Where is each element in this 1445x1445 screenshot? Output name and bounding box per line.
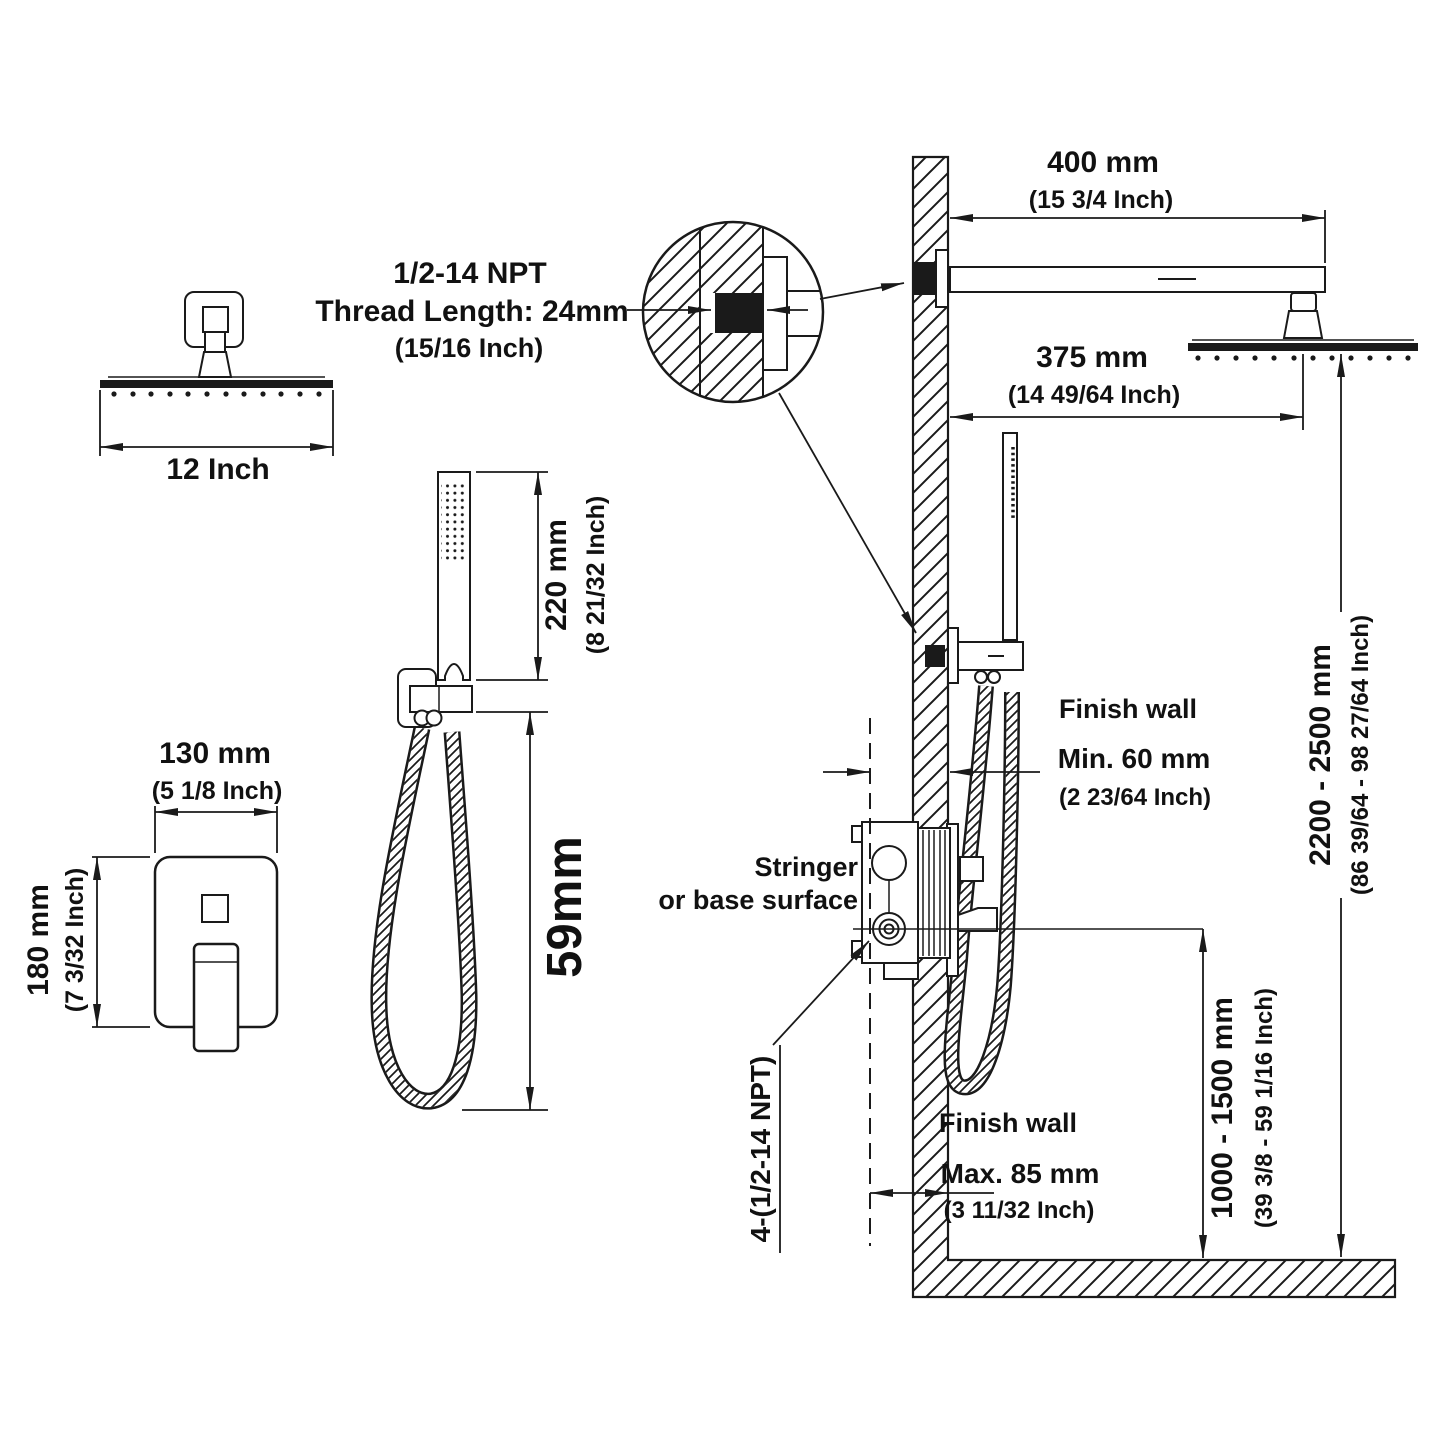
wall-hose-nut [988, 671, 1000, 683]
dim-head-height-in: (86 39/64 - 98 27/64 Inch) [1347, 615, 1374, 895]
dim-arm-mm: 400 mm [1047, 146, 1159, 179]
dim-max-in: (3 11/32 Inch) [944, 1197, 1095, 1224]
hand-shower-view: 220 mm (8 21/32 Inch) 59mm [379, 472, 610, 1110]
head-neck-cone [199, 352, 231, 377]
dim-min-mm: Min. 60 mm [1058, 743, 1210, 774]
npt-leader-arrow [773, 941, 869, 1045]
dim-valve-height-mm: 180 mm [22, 884, 55, 996]
holder-clamp [410, 686, 472, 712]
detail-flange [763, 257, 787, 370]
dim-hose-label-group: 59mm [538, 836, 592, 978]
dim-wand-length-in: (8 21/32 Inch) [582, 496, 610, 654]
valve-tab [852, 826, 862, 842]
dim-valve-install-in: (39 3/8 - 59 1/16 Inch) [1251, 988, 1278, 1228]
npt-ports-label-group: 4-(1/2-14 NPT) [745, 1045, 780, 1253]
dim-wand-length-labels: 220 mm (8 21/32 Inch) [540, 496, 610, 654]
shower-arm [950, 267, 1325, 292]
arm-thread-nipple [913, 262, 937, 295]
dim-head-height-labels: 2200 - 2500 mm (86 39/64 - 98 27/64 Inch… [1304, 615, 1374, 895]
wall-hose [951, 686, 1012, 1087]
dim-head-width-label: 12 Inch [166, 453, 269, 486]
head-swivel-cone [1284, 311, 1322, 338]
dim-valve-height-in: (7 3/32 Inch) [61, 868, 89, 1013]
wall-hose-nut [975, 671, 987, 683]
dim-offset-mm: 375 mm [1036, 341, 1148, 374]
dim-wand-length-mm: 220 mm [540, 519, 573, 631]
dim-arm-in: (15 3/4 Inch) [1029, 186, 1174, 214]
overhead-shower-front-view: 12 Inch [100, 292, 333, 486]
head-ball-collar [205, 332, 225, 352]
detail-leader-holder [779, 393, 916, 633]
thread-label-line2: Thread Length: 24mm [315, 295, 628, 328]
npt-ports-label: 4-(1/2-14 NPT) [745, 1056, 776, 1243]
diagram-canvas: 12 Inch 130 mm (5 1/8 Inch) 180 mm (7 3/… [0, 0, 1445, 1445]
dim-offset-in: (14 49/64 Inch) [1008, 381, 1180, 409]
arm-flange [936, 250, 948, 307]
hand-shower-hose [379, 728, 469, 1101]
detail-leader-arm [820, 283, 904, 299]
valve-bottom-port [884, 963, 918, 979]
thread-detail-view: 1/2-14 NPT Thread Length: 24mm (15/16 In… [315, 215, 916, 633]
wall-wand [1003, 433, 1017, 640]
dim-hose-label: 59mm [538, 836, 592, 978]
dim-max-mm: Max. 85 mm [941, 1158, 1100, 1189]
wall-holder-flange [948, 628, 958, 683]
stringer-label-line1: Stringer [754, 852, 858, 882]
holder-thread-nipple [925, 645, 945, 667]
dim-valve-install-mm: 1000 - 1500 mm [1206, 997, 1239, 1219]
valve-handle [194, 944, 238, 1051]
dim-min-in: (2 23/64 Inch) [1059, 784, 1211, 811]
stringer-label-line2: or base surface [658, 885, 858, 915]
thread-label-line1: 1/2-14 NPT [393, 257, 546, 290]
dim-head-height-mm: 2200 - 2500 mm [1304, 644, 1337, 866]
thread-label-line3: (15/16 Inch) [395, 333, 544, 363]
dim-valve-install-labels: 1000 - 1500 mm (39 3/8 - 59 1/16 Inch) [1206, 988, 1278, 1228]
dim-valve-height-labels: 180 mm (7 3/32 Inch) [22, 868, 89, 1013]
head-swivel-nut [1291, 293, 1316, 311]
hose-nut [427, 711, 442, 726]
mixer-valve-front-view: 130 mm (5 1/8 Inch) 180 mm (7 3/32 Inch) [22, 737, 282, 1051]
finish-wall-lower-label: Finish wall [939, 1108, 1077, 1138]
valve-trim-knob [960, 857, 983, 881]
valve-diverter-button [202, 895, 228, 922]
head-nozzles [111, 391, 321, 396]
dim-valve-width-in: (5 1/8 Inch) [152, 777, 283, 805]
hand-wand-sprayface [441, 483, 467, 560]
shower-installation-diagram: 12 Inch 130 mm (5 1/8 Inch) 180 mm (7 3/… [0, 0, 1445, 1445]
finish-wall-upper-label: Finish wall [1059, 694, 1197, 724]
detail-thread-nipple [715, 293, 763, 333]
dim-valve-width-mm: 130 mm [159, 737, 271, 770]
valve-port-top [872, 846, 906, 880]
head-mount-pipe [203, 307, 228, 332]
